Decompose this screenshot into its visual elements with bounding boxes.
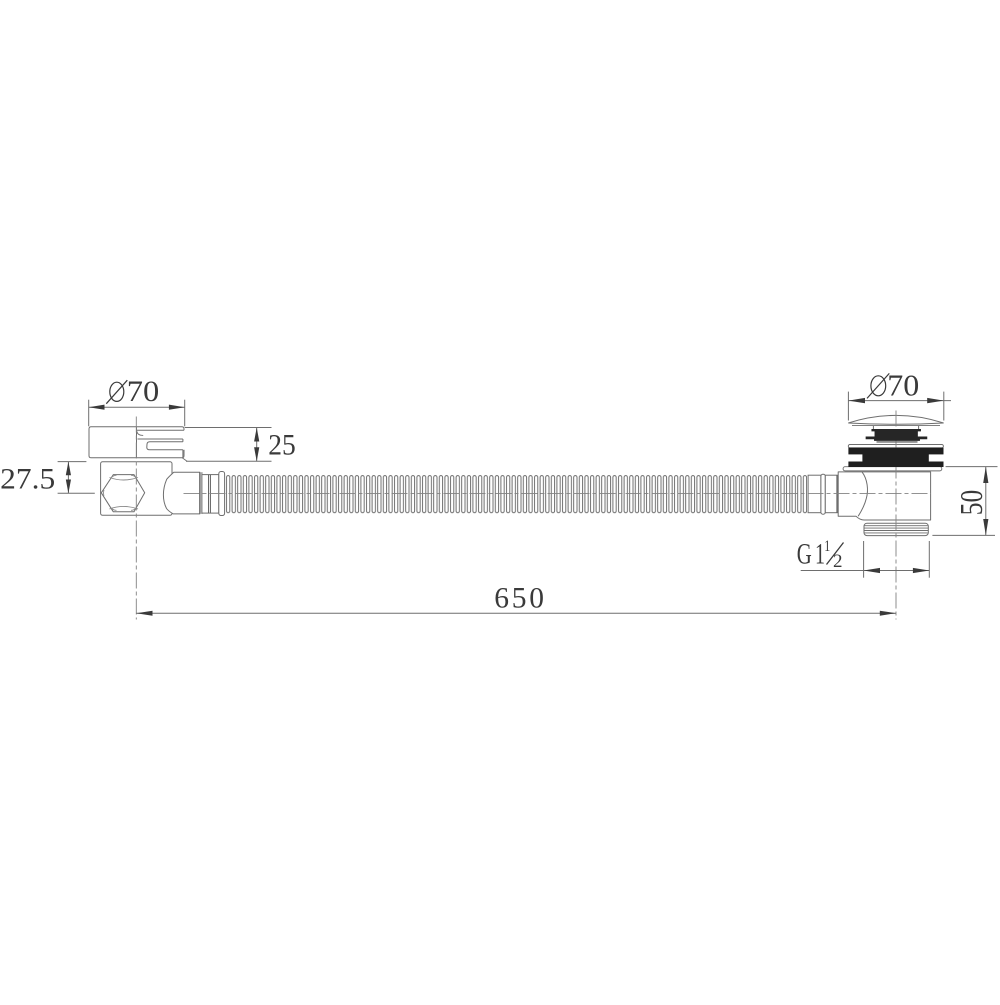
svg-text:70: 70 bbox=[887, 369, 919, 403]
svg-text:650: 650 bbox=[494, 583, 547, 615]
svg-text:G: G bbox=[797, 537, 812, 570]
svg-text:27.5: 27.5 bbox=[0, 462, 55, 495]
svg-text:1: 1 bbox=[824, 538, 830, 555]
svg-text:2: 2 bbox=[833, 551, 843, 572]
svg-text:70: 70 bbox=[127, 376, 160, 408]
svg-text:50: 50 bbox=[953, 490, 989, 516]
svg-text:25: 25 bbox=[268, 428, 296, 461]
